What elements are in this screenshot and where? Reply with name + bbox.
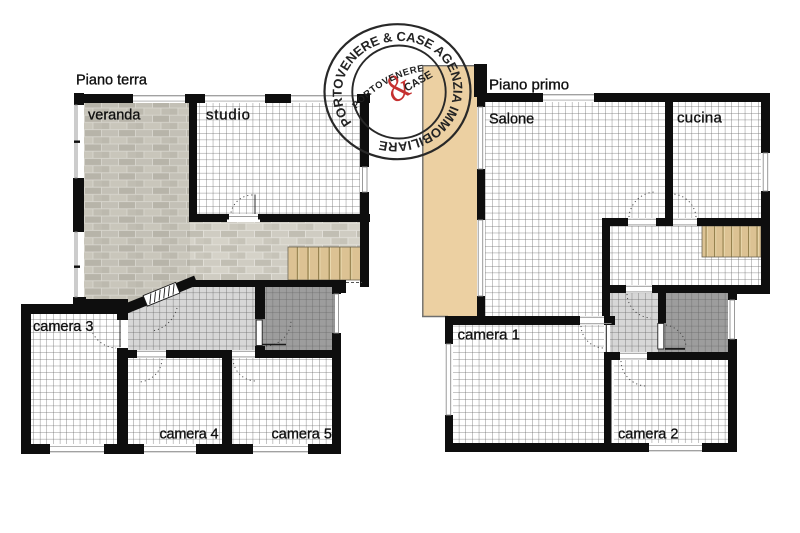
svg-text:Piano terra: Piano terra xyxy=(76,73,148,89)
svg-text:Salone: Salone xyxy=(489,112,534,128)
svg-text:veranda: veranda xyxy=(88,108,141,124)
svg-text:studio: studio xyxy=(206,107,251,124)
svg-text:camera 3: camera 3 xyxy=(33,319,93,335)
svg-text:cucina: cucina xyxy=(677,110,723,127)
svg-text:camera 2: camera 2 xyxy=(618,427,678,443)
svg-text:camera 1: camera 1 xyxy=(458,327,521,344)
svg-text:Piano primo: Piano primo xyxy=(489,77,569,94)
svg-text:camera 5: camera 5 xyxy=(272,427,332,443)
svg-text:camera 4: camera 4 xyxy=(160,427,219,443)
